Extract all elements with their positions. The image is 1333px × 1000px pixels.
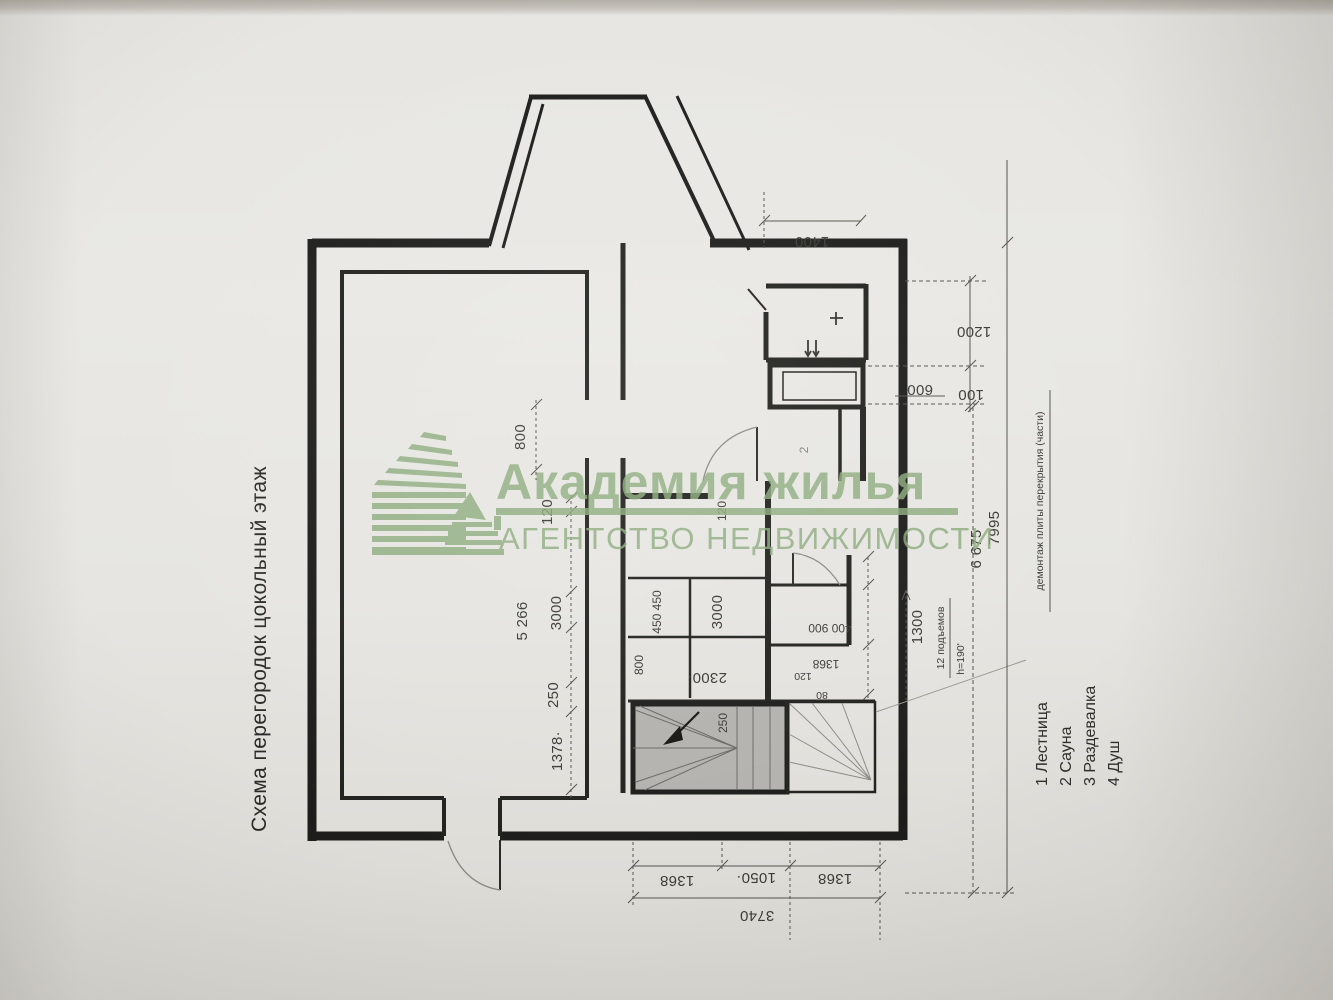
dim-bottom-1368b: 1368	[818, 870, 853, 887]
dim-bottom-1368a: 1368	[660, 872, 695, 889]
dim-left-3000: 3000	[548, 596, 565, 631]
dim-left-5266: 5 266	[514, 601, 531, 640]
dim-left-800: 800	[512, 424, 529, 450]
stair-fan-treads	[787, 702, 875, 792]
shower-fixture-icon	[805, 312, 843, 356]
dim-bottom-3740: 3740	[740, 907, 775, 924]
page-title: Схема перегородок цокольный этаж	[248, 466, 271, 832]
legend-item-shower: 4 Душ	[1106, 741, 1123, 786]
demolition-note: демонтаж плиты перекрытия (части)	[1034, 412, 1046, 591]
dim-right-1200: 1200	[957, 323, 992, 340]
room3-door-swing-arc	[793, 553, 840, 585]
dim-bottom-1050: 1050·	[736, 869, 776, 886]
dim-sauna-800: 800	[632, 655, 646, 675]
riser-height-note: h=190'	[955, 643, 967, 675]
dim-room3-1368: 1368	[812, 657, 839, 671]
dim-room3-400-900: 400 900	[808, 621, 852, 635]
dim-left-250: 250	[545, 682, 562, 708]
agency-logo-building-icon	[372, 432, 504, 555]
dim-stair-1300: 1300	[909, 610, 926, 645]
room-number-2: 2	[797, 446, 811, 453]
dim-left-1378: 1378·	[549, 731, 566, 771]
watermark-underline	[496, 508, 958, 515]
closet	[770, 365, 863, 407]
winder-staircase	[633, 702, 875, 792]
dim-sauna-3000: 3000	[709, 595, 726, 630]
dim-top-1400: 1400	[795, 233, 830, 250]
dim-right-100: 100	[958, 386, 984, 403]
dim-closet-600: 600	[907, 381, 933, 398]
entry-door	[448, 840, 500, 890]
stairs-risers-note: 12 подъемов	[935, 606, 947, 669]
dim-sauna-2300: 2300·	[687, 669, 727, 686]
photographed-floor-plan-page: { "title": "Схема перегородок цокольный …	[0, 0, 1333, 1000]
watermark-subtitle-text: АГЕНТСТВО НЕДВИЖИМОСТИ	[499, 521, 995, 556]
legend-item-sauna: 2 Сауна	[1058, 726, 1075, 786]
legend-item-changing-room: 3 Раздевалка	[1082, 686, 1099, 786]
dim-room3-80: 80	[816, 689, 828, 701]
dim-room3-120: 120	[794, 670, 812, 682]
watermark-brand-text: Академия жилья	[496, 454, 926, 510]
shower-door-leaf	[748, 289, 766, 310]
legend-item-stairs: 1 Лестница	[1034, 702, 1051, 786]
bay-window-walls	[489, 96, 749, 250]
dim-sauna-450: 450 450	[650, 590, 664, 634]
shower-room	[748, 284, 866, 360]
floor-plan-drawing: 1400 1200 100 600 7995 6 675 800 120 5 2…	[0, 0, 1333, 1000]
dim-stair-250: 250	[716, 713, 730, 733]
entry-door-swing-arc	[448, 841, 500, 890]
legend: 1 Лестница 2 Сауна 3 Раздевалка 4 Душ	[1034, 686, 1123, 786]
